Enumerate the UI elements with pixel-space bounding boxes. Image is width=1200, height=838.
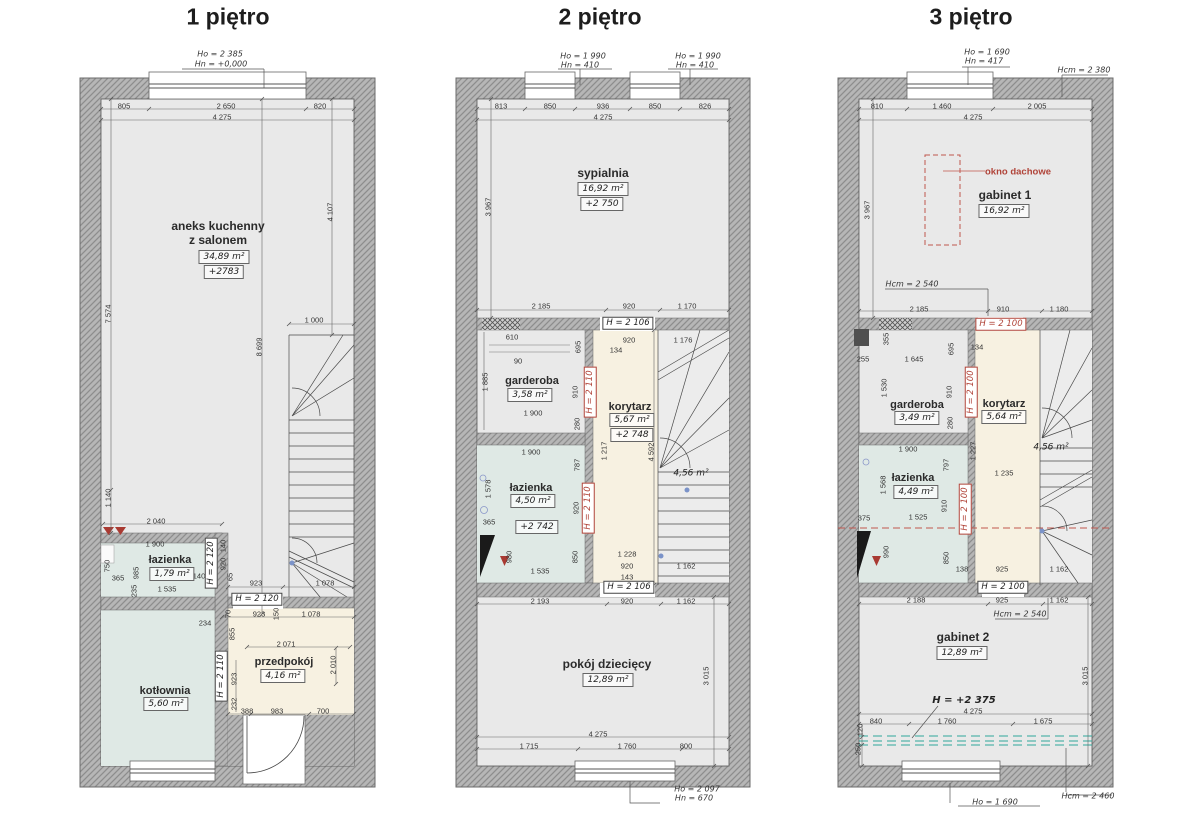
plan-title: 2 piętro (558, 6, 641, 29)
plan-title: 1 piętro (186, 6, 269, 29)
plan-2-drawing (456, 69, 750, 803)
handrail-post-dot (659, 554, 664, 559)
door-opening (600, 317, 655, 331)
plan-1-drawing (80, 69, 375, 787)
floor-plan-geometry (0, 0, 1200, 838)
fixture-niche (101, 545, 114, 563)
door-opening (982, 583, 1024, 597)
chimney-block (854, 329, 869, 346)
handrail-post-dot (1040, 529, 1045, 534)
vent-shaft-hatch (482, 318, 520, 330)
plan-title: 3 piętro (929, 6, 1012, 29)
handrail-post-dot (290, 561, 295, 566)
entry-door-opening (243, 715, 305, 784)
door-opening (233, 596, 283, 609)
floor-plan-sheet: 1 piętro 2 piętro 3 piętro Ho = 2 385Hn … (0, 0, 1200, 838)
door-opening (600, 583, 655, 597)
vent-shaft-hatch (879, 318, 912, 330)
door-opening (978, 317, 1023, 331)
handrail-post-dot (685, 488, 690, 493)
plan-3-drawing (838, 67, 1113, 806)
